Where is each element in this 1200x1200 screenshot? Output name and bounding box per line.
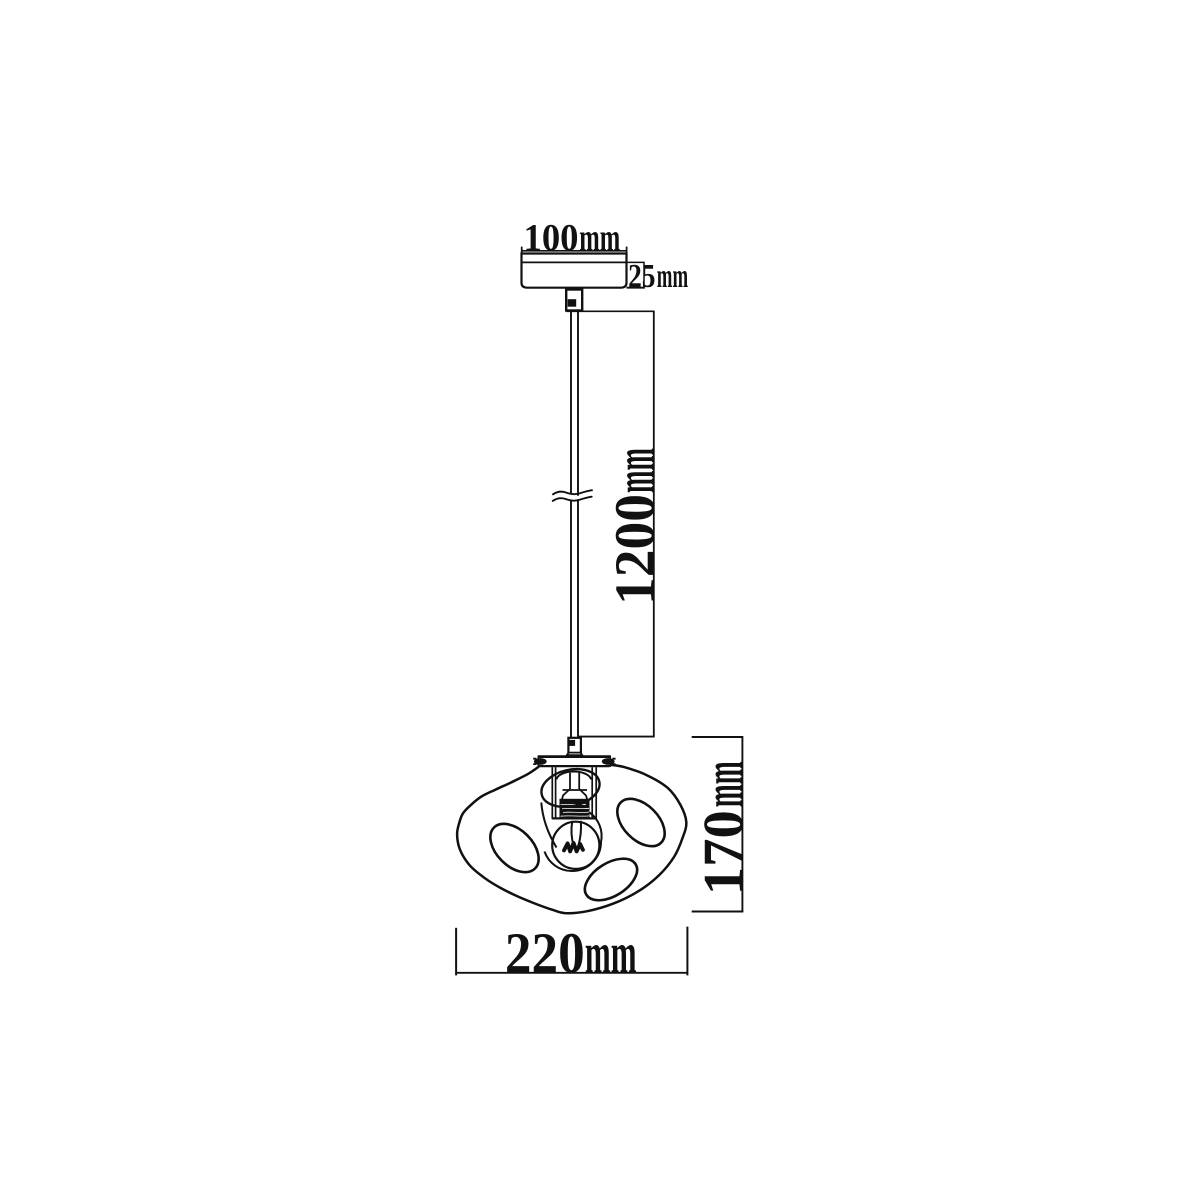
svg-text:mm: mm: [692, 761, 755, 807]
svg-text:170: 170: [692, 810, 755, 895]
svg-text:mm: mm: [604, 448, 667, 493]
svg-text:220: 220: [505, 920, 585, 985]
svg-text:25: 25: [628, 258, 655, 295]
svg-text:1200: 1200: [604, 494, 667, 605]
svg-text:mm: mm: [657, 258, 688, 295]
svg-text:mm: mm: [585, 920, 637, 985]
